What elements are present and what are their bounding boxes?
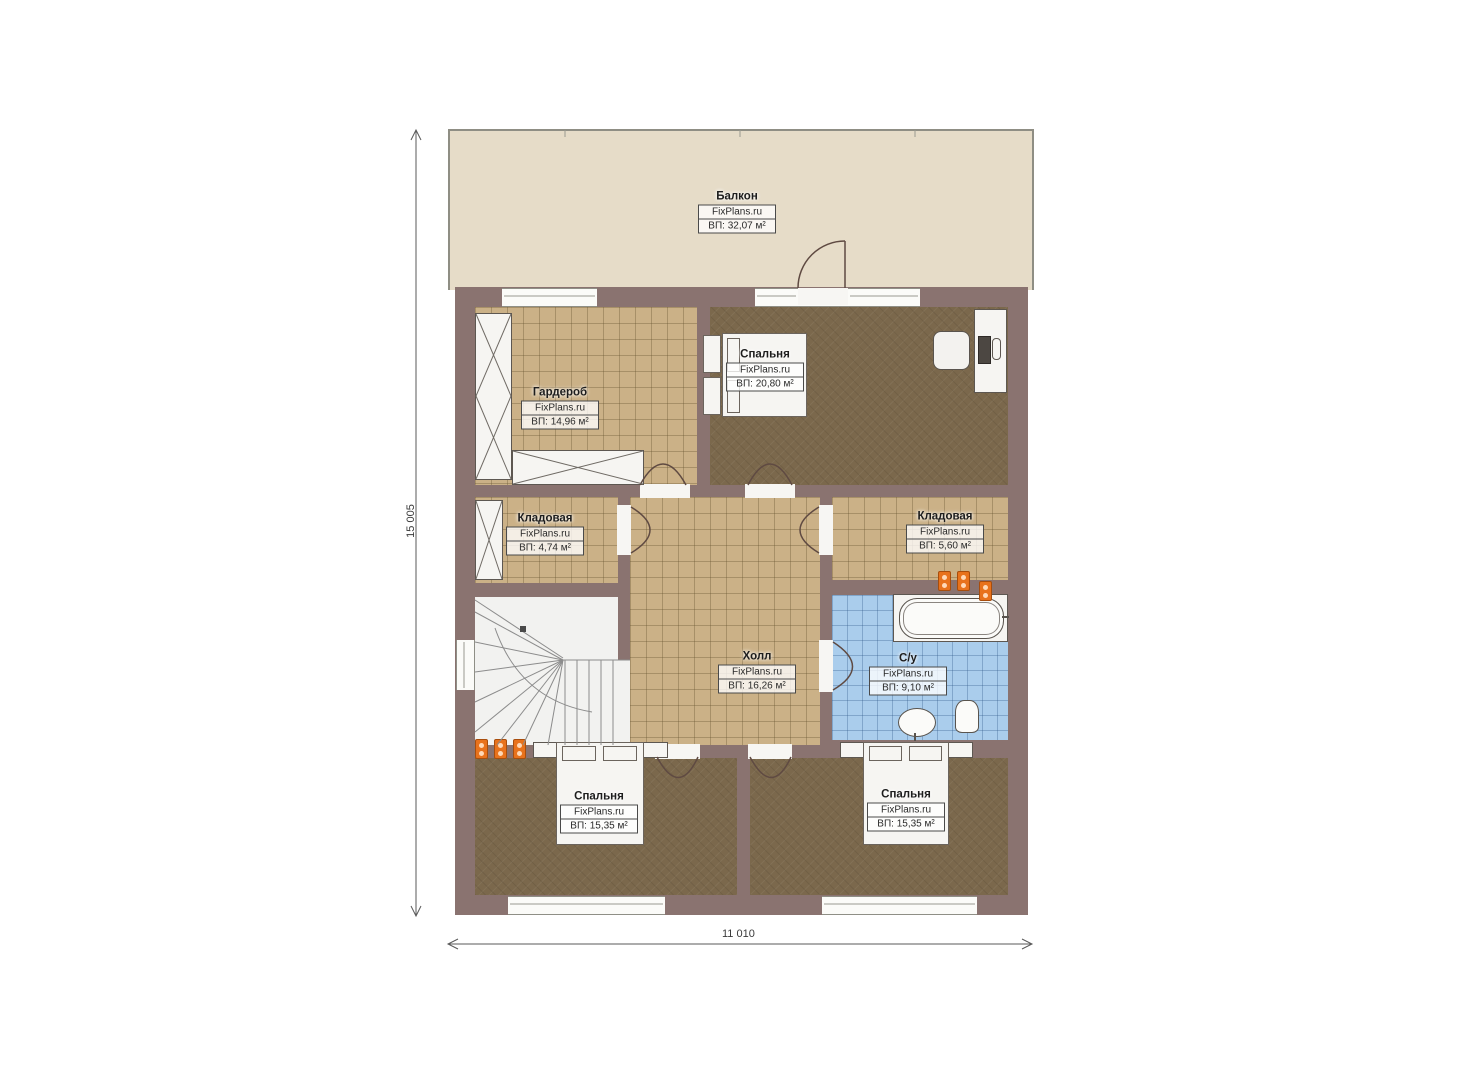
storage-left-closet — [475, 500, 503, 580]
brand-text: FixPlans.ru — [907, 526, 983, 540]
desk-chair — [933, 331, 970, 370]
brand-text: FixPlans.ru — [727, 364, 803, 378]
wardrobe-closet-bottom — [512, 450, 644, 485]
window-top-wardrobe — [502, 288, 597, 307]
room-area: ВП: 9,10 м² — [870, 682, 946, 695]
room-name: Спальня — [560, 791, 638, 803]
room-label-bedroom-top: Спальня FixPlans.ru ВП: 20,80 м² — [726, 349, 804, 392]
radiator-icon — [513, 739, 526, 759]
floor-plan-canvas: Балкон FixPlans.ru ВП: 32,07 м² Гардероб… — [0, 0, 1474, 1080]
window-bottom-left — [508, 896, 665, 915]
bedroom-top-door-opening — [745, 484, 795, 498]
radiator-icon — [494, 739, 507, 759]
brand-text: FixPlans.ru — [868, 804, 944, 818]
radiator-icon — [475, 739, 488, 759]
brand-text: FixPlans.ru — [561, 806, 637, 820]
bed-top-nightstand-2 — [703, 377, 721, 415]
room-name: С/у — [869, 653, 947, 665]
storage-left-door-opening — [617, 505, 631, 555]
brand-text: FixPlans.ru — [870, 668, 946, 682]
radiator-icon — [957, 571, 970, 591]
room-label-hall: Холл FixPlans.ru ВП: 16,26 м² — [718, 651, 796, 694]
room-name: Кладовая — [906, 511, 984, 523]
room-label-bathroom: С/у FixPlans.ru ВП: 9,10 м² — [869, 653, 947, 696]
room-label-bedroom-bottom-left: Спальня FixPlans.ru ВП: 15,35 м² — [560, 791, 638, 834]
bedroom-br-door-opening — [748, 744, 792, 759]
stair-room-floor — [475, 597, 630, 745]
room-name: Балкон — [698, 191, 776, 203]
window-left-stair — [456, 640, 475, 690]
bathroom-door-opening — [819, 640, 833, 692]
window-bottom-right — [822, 896, 977, 915]
balcony-door-opening — [798, 288, 848, 305]
room-area: ВП: 14,96 м² — [522, 416, 598, 429]
dimension-height: 15 005 — [405, 504, 417, 538]
toilet — [955, 700, 979, 733]
room-area: ВП: 4,74 м² — [507, 542, 583, 555]
wardrobe-closet-left — [475, 313, 512, 480]
room-area: ВП: 15,35 м² — [561, 820, 637, 833]
room-label-bedroom-bottom-right: Спальня FixPlans.ru ВП: 15,35 м² — [867, 789, 945, 832]
room-area: ВП: 16,26 м² — [719, 680, 795, 693]
radiator-icon — [979, 581, 992, 601]
room-area: ВП: 15,35 м² — [868, 818, 944, 831]
dimension-width: 11 010 — [722, 928, 755, 940]
room-name: Спальня — [726, 349, 804, 361]
bed-br-pillow-1 — [869, 746, 902, 761]
room-label-balcony: Балкон FixPlans.ru ВП: 32,07 м² — [698, 191, 776, 234]
stair-hall-wall-patch — [618, 597, 630, 660]
bed-top-nightstand-1 — [703, 335, 721, 373]
sink — [898, 708, 936, 737]
room-area: ВП: 32,07 м² — [699, 220, 775, 233]
brand-text: FixPlans.ru — [507, 528, 583, 542]
bathtub — [899, 598, 1004, 639]
bed-bl-pillow-2 — [603, 746, 637, 761]
room-label-storage-right: Кладовая FixPlans.ru ВП: 5,60 м² — [906, 511, 984, 554]
wardrobe-door-opening — [640, 484, 690, 498]
room-area: ВП: 5,60 м² — [907, 540, 983, 553]
bed-bl-pillow-1 — [562, 746, 596, 761]
room-name: Холл — [718, 651, 796, 663]
laptop — [978, 336, 991, 364]
bed-br-pillow-2 — [909, 746, 942, 761]
hall-floor — [630, 497, 820, 745]
room-area: ВП: 20,80 м² — [727, 378, 803, 391]
radiator-icon — [938, 571, 951, 591]
room-label-storage-left: Кладовая FixPlans.ru ВП: 4,74 м² — [506, 513, 584, 556]
room-name: Гардероб — [521, 387, 599, 399]
desk-item — [992, 338, 1001, 360]
brand-text: FixPlans.ru — [719, 666, 795, 680]
brand-text: FixPlans.ru — [522, 402, 598, 416]
storage-right-door-opening — [819, 505, 833, 555]
room-label-wardrobe: Гардероб FixPlans.ru ВП: 14,96 м² — [521, 387, 599, 430]
brand-text: FixPlans.ru — [699, 206, 775, 220]
room-name: Кладовая — [506, 513, 584, 525]
room-name: Спальня — [867, 789, 945, 801]
